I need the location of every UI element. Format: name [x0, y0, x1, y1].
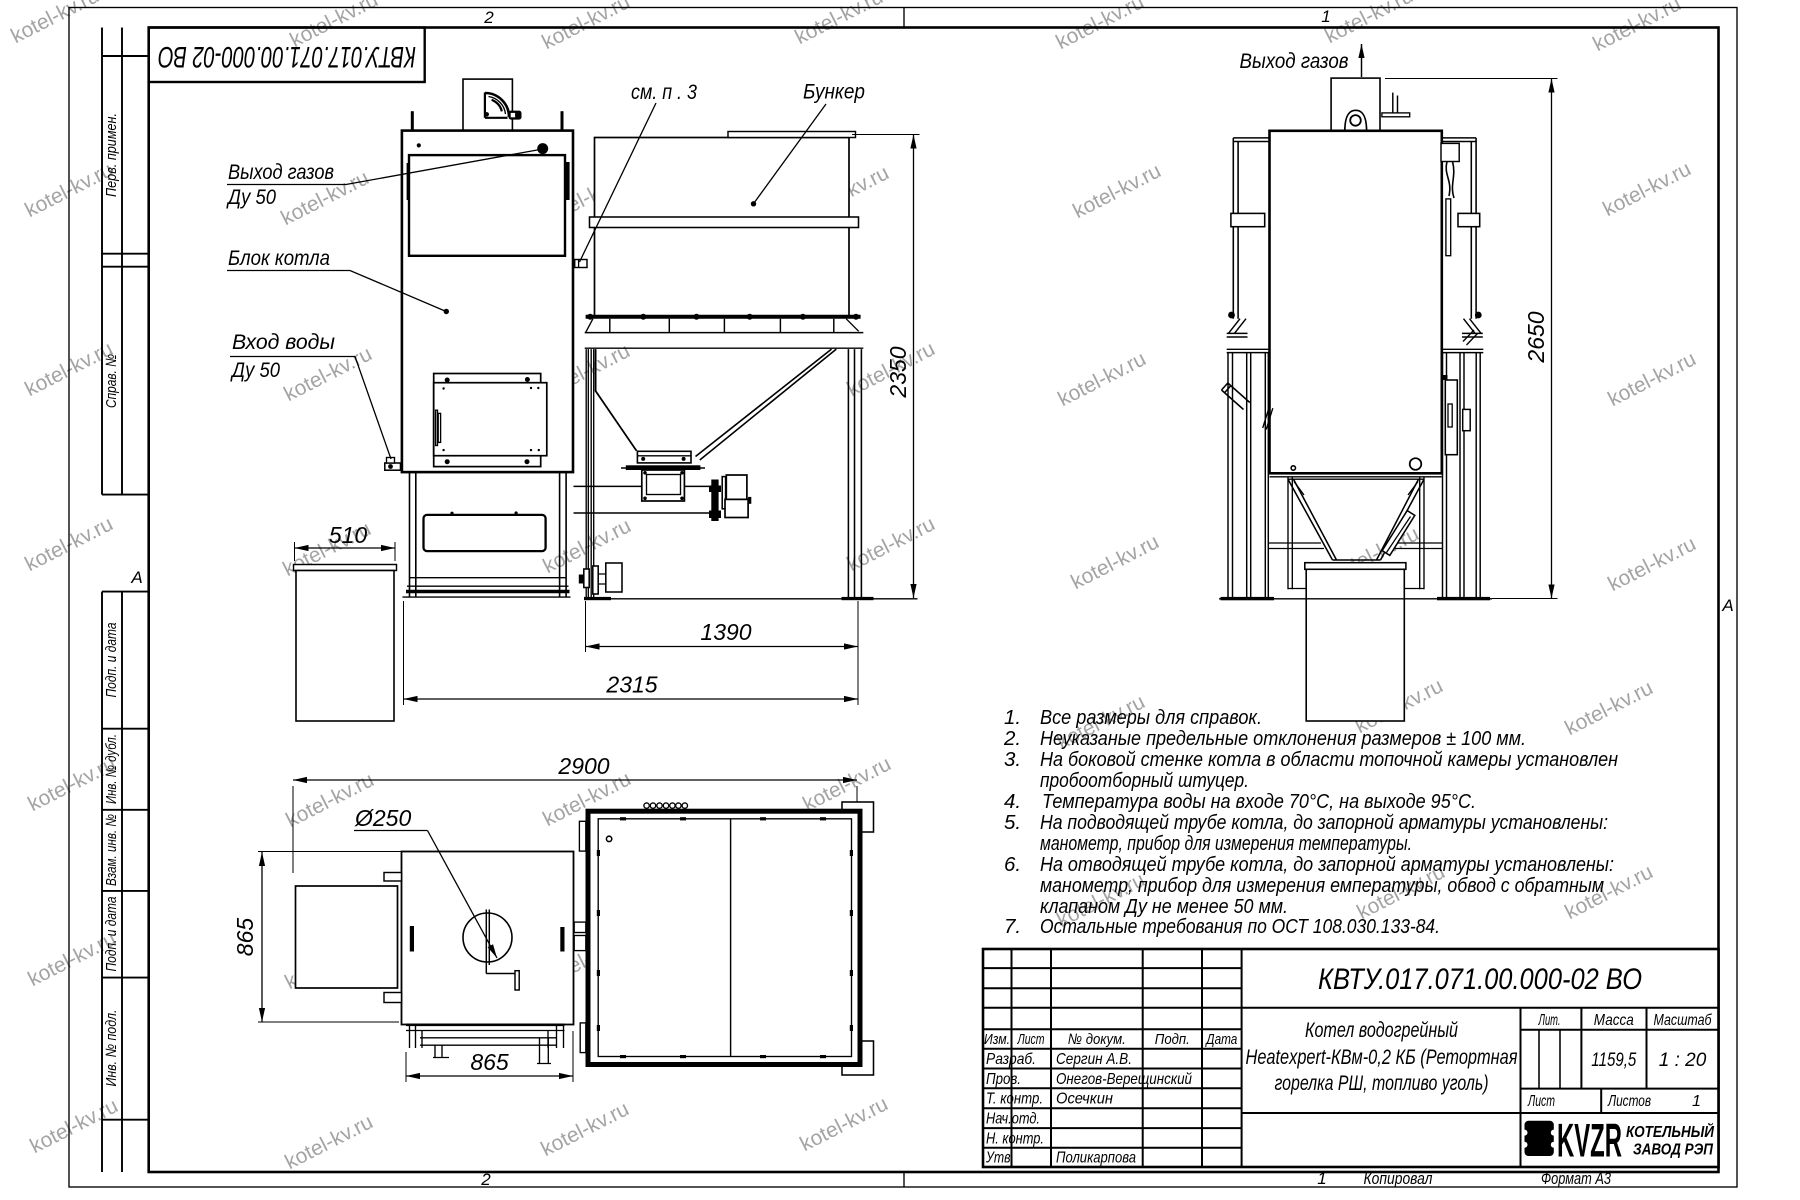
svg-text:2.: 2. — [1003, 727, 1021, 750]
svg-text:Инв. № подл.: Инв. № подл. — [103, 1010, 120, 1087]
svg-text:2350: 2350 — [885, 346, 911, 398]
svg-text:Онегов-Верещинский: Онегов-Верещинский — [1056, 1071, 1192, 1088]
svg-text:Листов: Листов — [1607, 1093, 1651, 1110]
svg-text:Ду 50: Ду 50 — [226, 186, 276, 209]
svg-text:Инв. № дубл.: Инв. № дубл. — [103, 734, 120, 804]
svg-text:Блок котла: Блок котла — [228, 247, 330, 270]
svg-text:Взам. инв. №: Взам. инв. № — [103, 814, 120, 886]
svg-text:Выход газов: Выход газов — [1240, 50, 1349, 73]
svg-text:На подводящей трубе котла, до: На подводящей трубе котла, до запорной а… — [1040, 811, 1608, 834]
svg-text:Вход воды: Вход воды — [232, 331, 336, 354]
svg-text:KVZR: KVZR — [1557, 1114, 1622, 1167]
svg-text:4.: 4. — [1004, 790, 1021, 813]
svg-text:см. п . 3: см. п . 3 — [631, 81, 697, 104]
svg-text:Н. контр.: Н. контр. — [986, 1130, 1044, 1147]
svg-text:Котел водогрейный: Котел водогрейный — [1305, 1019, 1458, 1042]
svg-text:Heatexpert-КВм-0,2 КБ (Ретортн: Heatexpert-КВм-0,2 КБ (Ретортная — [1246, 1046, 1518, 1069]
svg-text:Т. контр.: Т. контр. — [986, 1091, 1043, 1108]
svg-text:1159,5: 1159,5 — [1591, 1050, 1636, 1071]
svg-text:Подп.: Подп. — [1155, 1031, 1190, 1048]
svg-text:Изм.: Изм. — [984, 1031, 1010, 1048]
svg-text:1.: 1. — [1004, 706, 1021, 729]
svg-text:5.: 5. — [1004, 811, 1021, 834]
svg-text:пробоотборный штуцер.: пробоотборный штуцер. — [1040, 769, 1249, 792]
svg-text:2650: 2650 — [1523, 311, 1549, 363]
svg-text:2900: 2900 — [557, 753, 609, 779]
svg-text:Лист: Лист — [1017, 1031, 1045, 1048]
svg-text:865: 865 — [470, 1049, 509, 1075]
svg-text:Нач.отд.: Нач.отд. — [986, 1111, 1040, 1128]
svg-text:1390: 1390 — [700, 619, 751, 645]
svg-text:Разраб.: Разраб. — [986, 1051, 1036, 1068]
svg-text:манометр, прибор для измерения: манометр, прибор для измерения температу… — [1040, 832, 1412, 855]
svg-text:Масса: Масса — [1594, 1012, 1634, 1029]
svg-text:КВТУ.017.071.00.000-02 ВО: КВТУ.017.071.00.000-02 ВО — [158, 40, 416, 73]
svg-text:Поликарпова: Поликарпова — [1056, 1150, 1136, 1167]
svg-text:Копировал: Копировал — [1364, 1169, 1433, 1188]
svg-text:Бункер: Бункер — [803, 81, 865, 104]
svg-text:Масштаб: Масштаб — [1654, 1012, 1713, 1029]
svg-text:2: 2 — [483, 8, 494, 27]
svg-text:Неуказаные предельные отклонен: Неуказаные предельные отклонения размеро… — [1040, 727, 1526, 750]
svg-text:Лист: Лист — [1527, 1093, 1555, 1110]
svg-text:КОТЕЛЬНЫЙ: КОТЕЛЬНЫЙ — [1626, 1121, 1714, 1141]
svg-text:А: А — [130, 568, 142, 587]
svg-text:Выход газов: Выход газов — [228, 161, 334, 184]
svg-text:На отводящей трубе котла, до з: На отводящей трубе котла, до запорной ар… — [1040, 853, 1614, 876]
svg-text:6.: 6. — [1004, 853, 1021, 876]
svg-text:Подп. и дата: Подп. и дата — [103, 897, 120, 972]
svg-text:Дата: Дата — [1205, 1031, 1238, 1048]
svg-text:510: 510 — [329, 522, 368, 548]
svg-text:Подп. и дата: Подп. и дата — [103, 623, 120, 698]
svg-text:Перв. примен.: Перв. примен. — [103, 113, 120, 197]
svg-text:горелка РШ, топливо уголь): горелка РШ, топливо уголь) — [1275, 1072, 1489, 1095]
svg-text:1 : 20: 1 : 20 — [1659, 1050, 1707, 1071]
svg-text:Формат А3: Формат А3 — [1541, 1169, 1611, 1188]
svg-text:3.: 3. — [1004, 748, 1021, 771]
svg-text:Сергин А.В.: Сергин А.В. — [1056, 1051, 1132, 1068]
svg-text:А: А — [1721, 596, 1733, 615]
svg-text:манометр, прибор для измерения: манометр, прибор для измерения емператур… — [1040, 874, 1604, 897]
svg-text:1: 1 — [1692, 1093, 1701, 1110]
svg-text:865: 865 — [232, 918, 258, 957]
svg-text:№ докум.: № докум. — [1068, 1031, 1126, 1048]
svg-text:Лит.: Лит. — [1538, 1012, 1561, 1029]
svg-text:На боковой стенке котла в обла: На боковой стенке котла в области топочн… — [1040, 748, 1618, 771]
svg-text:Все размеры для справок.: Все размеры для справок. — [1040, 706, 1262, 729]
svg-text:1: 1 — [1321, 7, 1330, 26]
svg-text:2: 2 — [480, 1170, 491, 1189]
svg-text:Пров.: Пров. — [986, 1071, 1021, 1088]
svg-text:Температура воды на входе 70°С: Температура воды на входе 70°С, на выход… — [1042, 790, 1476, 813]
svg-text:Остальные требования по ОСТ 10: Остальные требования по ОСТ 108.030.133-… — [1040, 915, 1440, 938]
svg-text:7.: 7. — [1004, 915, 1021, 938]
svg-text:КВТУ.017.071.00.000-02 ВО: КВТУ.017.071.00.000-02 ВО — [1318, 963, 1642, 996]
svg-text:Ду 50: Ду 50 — [230, 359, 280, 382]
svg-text:Утв.: Утв. — [985, 1150, 1014, 1167]
svg-text:ЗАВОД РЭП: ЗАВОД РЭП — [1633, 1142, 1713, 1159]
svg-text:Осечкин: Осечкин — [1056, 1091, 1113, 1108]
svg-text:Справ. №: Справ. № — [103, 354, 120, 408]
svg-text:1: 1 — [1317, 1169, 1326, 1188]
svg-text:Ø250: Ø250 — [354, 805, 411, 831]
svg-text:2315: 2315 — [605, 672, 657, 698]
